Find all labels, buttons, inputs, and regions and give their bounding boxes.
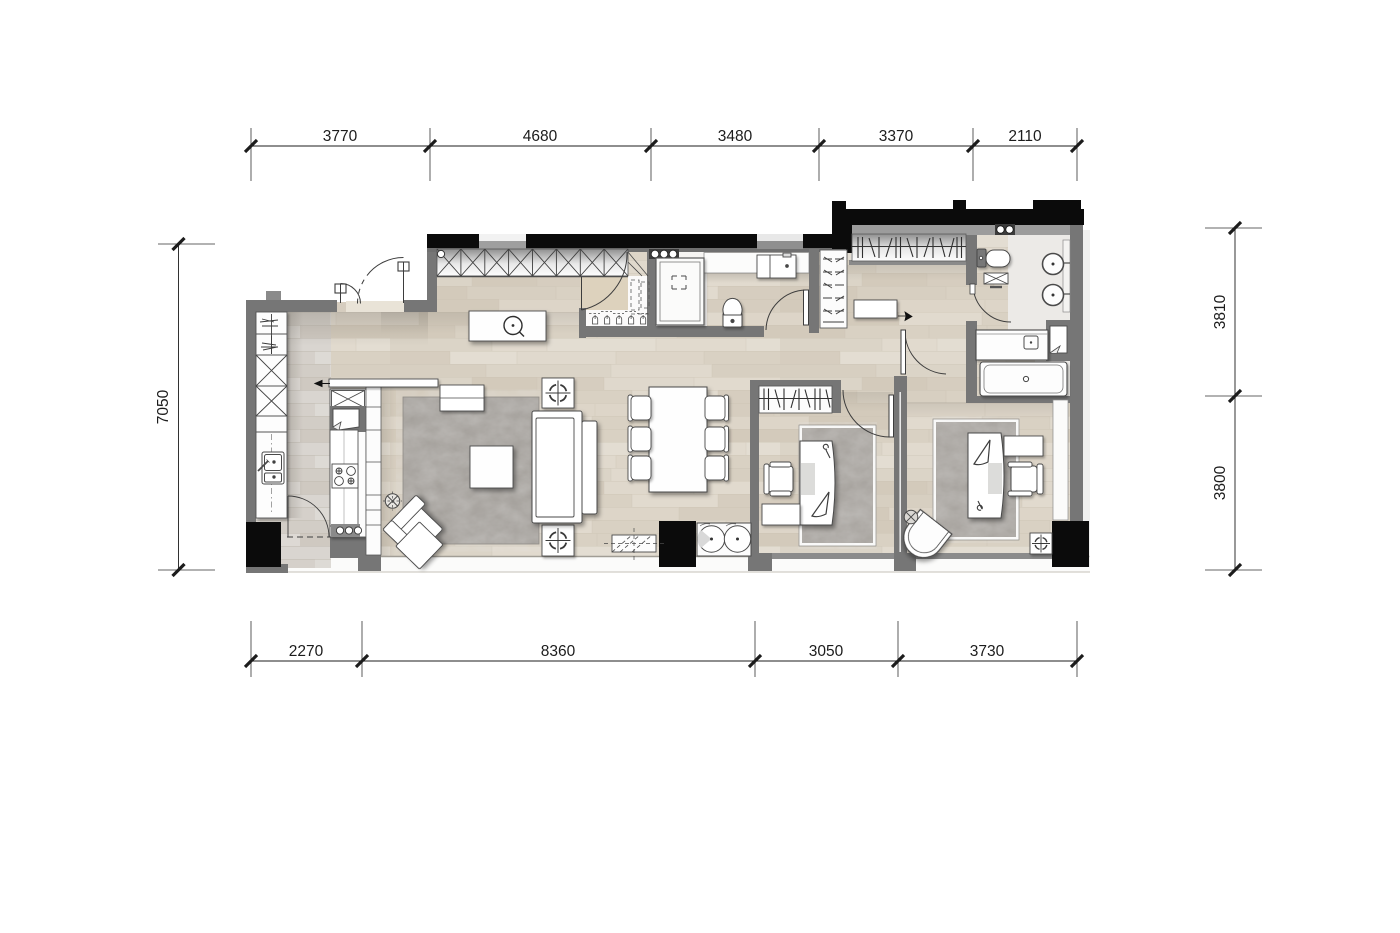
svg-text:3810: 3810 — [1212, 294, 1229, 329]
svg-text:4680: 4680 — [523, 128, 558, 145]
svg-text:2110: 2110 — [1008, 128, 1042, 145]
svg-text:3800: 3800 — [1212, 465, 1229, 500]
svg-text:3730: 3730 — [970, 643, 1005, 660]
svg-text:3770: 3770 — [323, 128, 358, 145]
svg-text:3050: 3050 — [809, 643, 844, 660]
svg-text:3480: 3480 — [718, 128, 753, 145]
svg-text:3370: 3370 — [879, 128, 914, 145]
svg-text:8360: 8360 — [541, 643, 576, 660]
svg-text:7050: 7050 — [155, 389, 172, 424]
svg-text:2270: 2270 — [289, 643, 324, 660]
